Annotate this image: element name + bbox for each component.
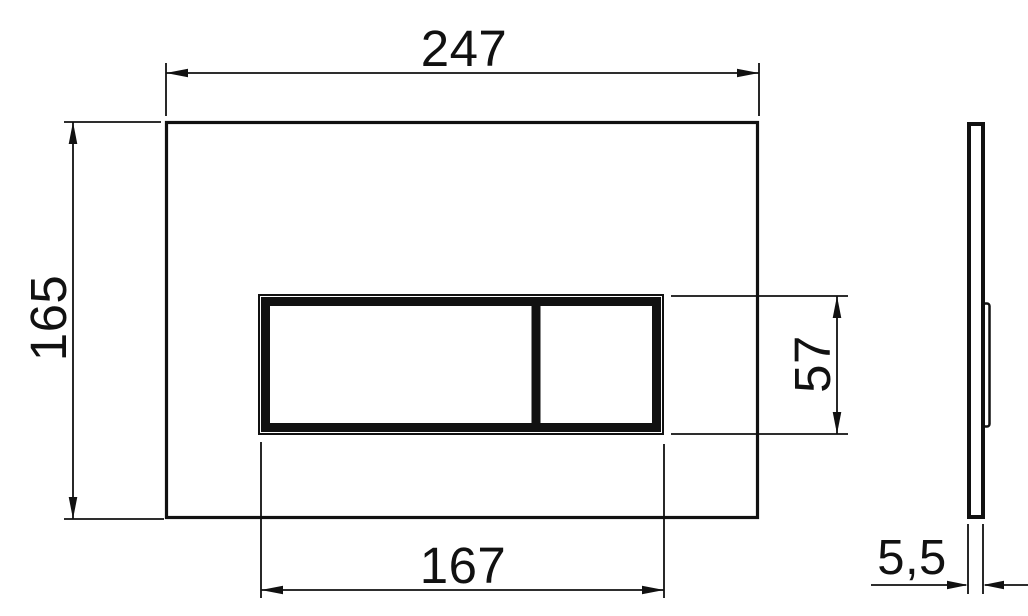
plate-side-outline <box>969 124 983 517</box>
technical-drawing-canvas: 247 165 167 57 <box>0 0 1028 616</box>
dimension-drawing: 247 165 167 57 <box>0 0 1028 616</box>
dim-overall-width: 247 <box>166 20 759 116</box>
dim-overall-width-arrow-right <box>737 69 759 78</box>
dim-overall-width-label: 247 <box>421 20 508 77</box>
dim-button-width-label: 167 <box>420 537 507 594</box>
front-view <box>167 123 758 518</box>
dim-overall-height-arrow-top <box>69 122 78 144</box>
dim-overall-height-arrow-bottom <box>69 497 78 519</box>
dim-button-height-arrow-bottom <box>833 412 842 434</box>
dim-thickness-label: 5,5 <box>877 531 947 585</box>
side-view <box>969 124 990 517</box>
button-side-profile <box>983 304 990 427</box>
dim-overall-width-arrow-left <box>166 69 188 78</box>
dim-button-width-arrow-right <box>642 586 664 595</box>
dim-button-width-arrow-left <box>261 586 283 595</box>
dim-overall-height: 165 <box>20 122 164 519</box>
dim-button-height-label: 57 <box>784 335 841 393</box>
plate-front-outline <box>167 123 758 518</box>
dim-thickness-arrow-left <box>947 581 968 589</box>
dim-thickness-arrow-right <box>983 581 1004 589</box>
dim-overall-height-label: 165 <box>20 275 77 362</box>
dim-button-height-arrow-top <box>833 296 842 318</box>
dim-thickness: 5,5 <box>871 524 1028 594</box>
